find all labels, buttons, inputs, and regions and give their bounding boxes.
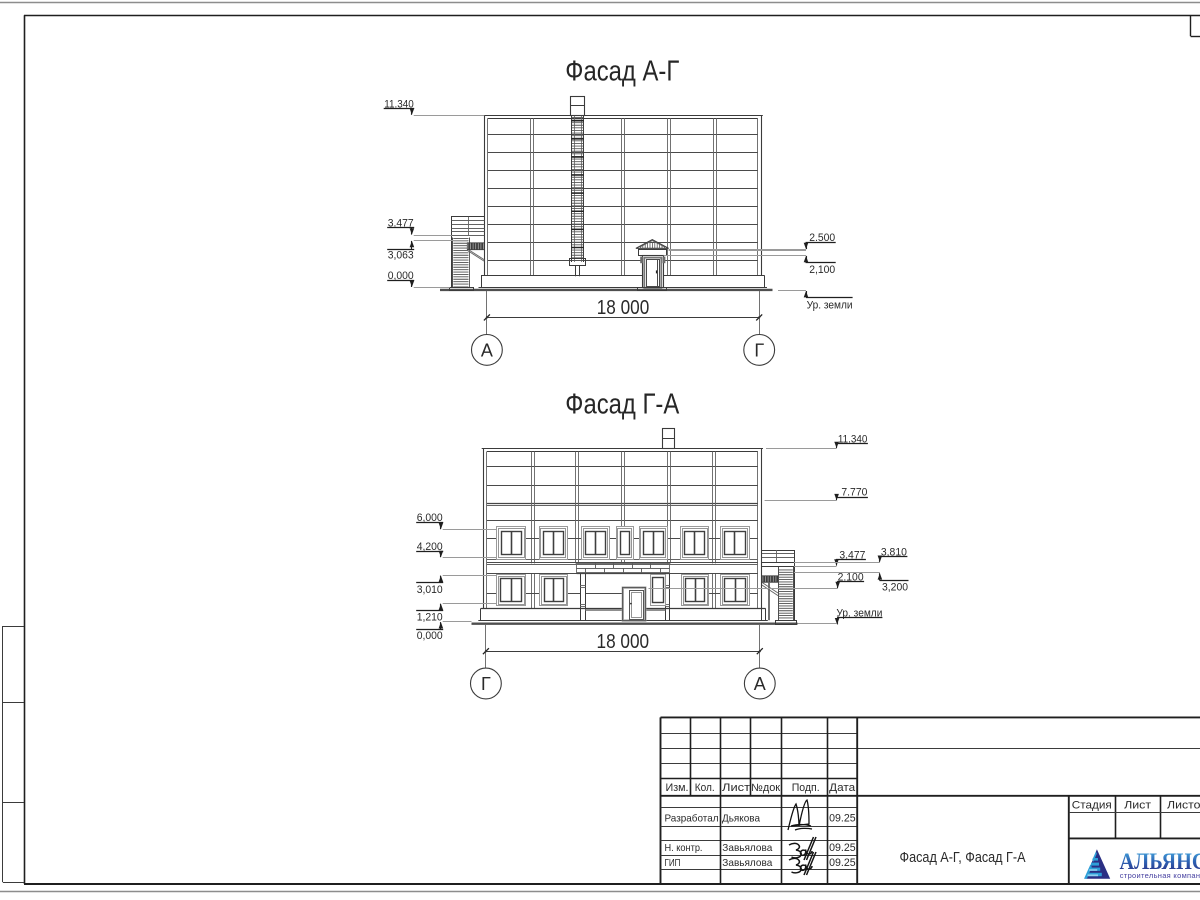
svg-text:3,063: 3,063 [388,250,414,262]
svg-text:Дьякова: Дьякова [722,813,760,824]
svg-text:09.25: 09.25 [829,842,856,854]
svg-text:Ур. земли: Ур. земли [807,300,853,312]
svg-text:09.25: 09.25 [829,857,856,869]
svg-text:Листов: Листов [1167,800,1200,812]
svg-text:Завьялова: Завьялова [722,858,772,869]
svg-text:Фасад А-Г, Фасад Г-А: Фасад А-Г, Фасад Г-А [900,850,1026,866]
svg-text:Стадия: Стадия [1072,800,1112,812]
svg-text:Лист: Лист [1124,800,1151,812]
svg-text:А: А [481,340,493,360]
svg-text:7.770: 7.770 [841,487,867,499]
svg-text:09.25: 09.25 [829,812,856,824]
svg-text:Фасад Г-А: Фасад Г-А [565,389,679,421]
svg-text:А: А [754,674,766,694]
svg-text:ГИП: ГИП [665,858,681,869]
svg-text:3,010: 3,010 [417,584,443,596]
svg-text:Разработал: Разработал [665,812,719,824]
svg-text:Н. контр.: Н. контр. [665,843,703,854]
svg-text:18 000: 18 000 [597,630,650,653]
svg-text:18 000: 18 000 [597,296,650,319]
svg-text:№док: №док [751,782,780,794]
svg-text:Изм.: Изм. [666,782,689,794]
svg-text:Дата: Дата [829,782,855,794]
svg-text:строительная компания: строительная компания [1120,871,1200,880]
svg-text:Лист: Лист [722,782,750,794]
svg-text:Кол.: Кол. [695,782,715,794]
svg-text:АЛЬЯНС: АЛЬЯНС [1120,849,1200,874]
svg-text:2,100: 2,100 [809,264,835,276]
svg-text:Г: Г [481,674,491,694]
svg-text:3,200: 3,200 [882,581,908,593]
svg-text:Подп.: Подп. [792,782,820,794]
svg-text:Фасад А-Г: Фасад А-Г [565,56,679,88]
svg-text:1,210: 1,210 [417,611,443,623]
svg-text:0,000: 0,000 [417,630,443,642]
svg-text:Г: Г [754,340,764,360]
svg-text:Завьялова: Завьялова [722,843,772,854]
